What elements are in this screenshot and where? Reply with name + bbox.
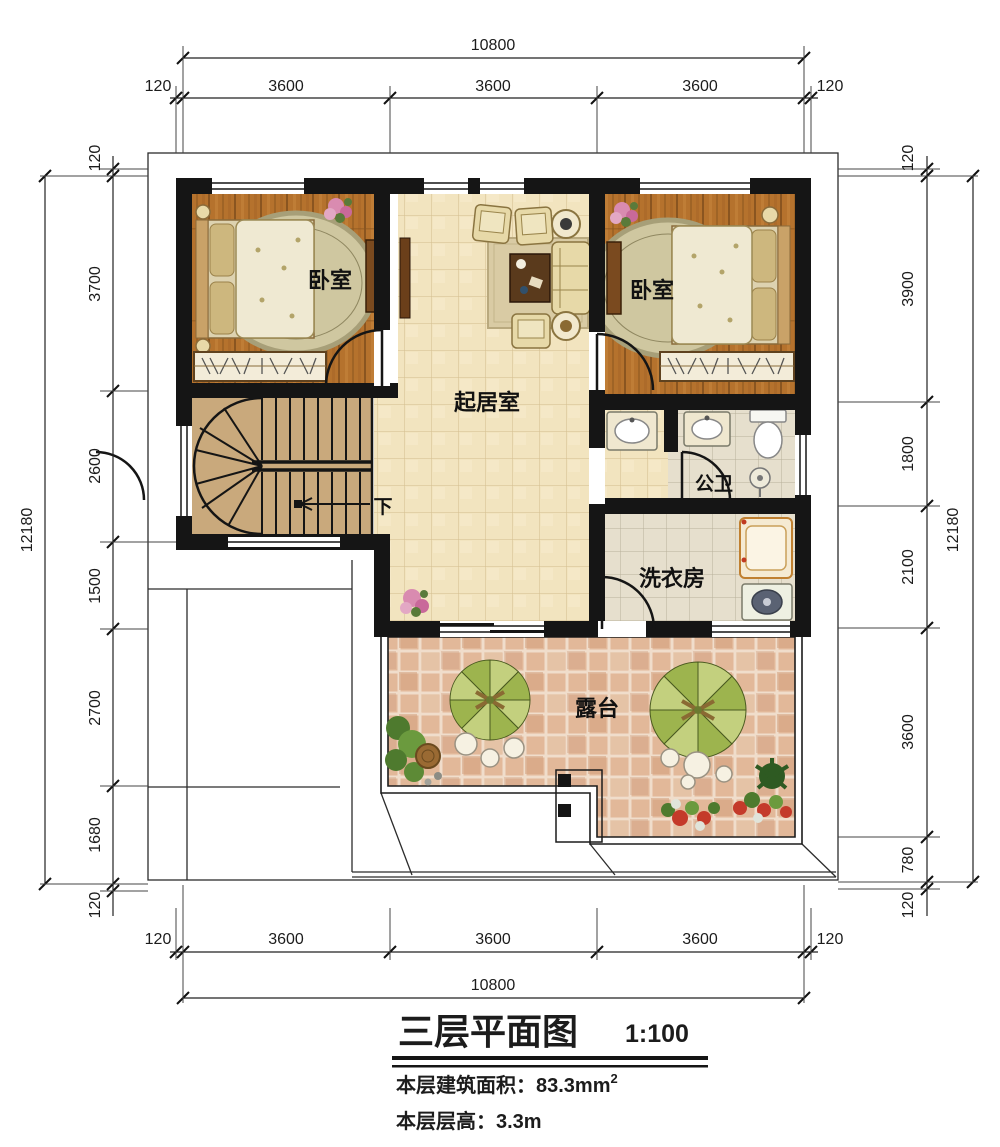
dims-left xyxy=(39,156,176,916)
lamp xyxy=(762,207,778,223)
room-label-living-room: 起居室 xyxy=(453,390,520,415)
dim-right-seg: 2100 xyxy=(900,549,917,585)
floor-area-line: 本层建筑面积：83.3mm2 xyxy=(396,1071,618,1097)
floor-plan-page: 下 xyxy=(0,0,1000,1147)
dim-right-seg: 3600 xyxy=(900,714,917,750)
window xyxy=(795,435,811,495)
sliding-door[interactable] xyxy=(440,621,544,637)
tv-cabinet xyxy=(400,238,410,318)
window xyxy=(212,178,304,194)
lamp xyxy=(196,205,210,219)
bed xyxy=(672,226,790,344)
wall-bedroomR-bottom xyxy=(589,394,811,410)
dim-right-seg: 120 xyxy=(900,892,917,919)
armchair xyxy=(515,207,553,245)
wardrobe xyxy=(660,352,794,381)
dim-top-seg: 120 xyxy=(145,78,172,95)
title-block: 三层平面图 1:100 本层建筑面积：83.3mm2 本层层高：3.3m xyxy=(392,1011,708,1133)
dim-left-overall: 12180 xyxy=(19,508,36,553)
dims-right-labels: 120 3900 1800 2100 3600 780 120 12180 xyxy=(900,145,962,919)
dim-top-seg: 3600 xyxy=(682,78,718,95)
wall-bedroomL-bottom xyxy=(176,383,398,398)
dims-bottom-labels: 120 3600 3600 3600 120 10800 xyxy=(145,931,844,994)
drawing-scale: 1:100 xyxy=(625,1020,689,1048)
coffee-table xyxy=(510,254,550,302)
window xyxy=(424,178,468,194)
wall-bath-alcove xyxy=(664,410,678,452)
dim-left-seg: 1680 xyxy=(87,817,104,853)
dim-right-seg: 1800 xyxy=(900,436,917,472)
dim-bottom-seg: 3600 xyxy=(475,931,511,948)
chair xyxy=(661,749,679,767)
dim-top-overall: 10800 xyxy=(471,37,516,54)
washing-machine xyxy=(740,518,792,578)
sink xyxy=(607,412,657,450)
armchair xyxy=(512,314,550,348)
dim-bottom-seg: 3600 xyxy=(682,931,718,948)
title-rule-thick xyxy=(392,1056,708,1060)
room-label-bedroom-right: 卧室 xyxy=(630,278,674,303)
window xyxy=(228,537,340,547)
dim-right-seg: 780 xyxy=(900,847,917,874)
chair xyxy=(681,775,695,789)
wall-living-bedroomR-upper xyxy=(589,194,605,332)
dims-left-labels: 120 3700 2600 1500 2700 1680 120 12180 xyxy=(19,145,104,919)
dim-top-seg: 120 xyxy=(817,78,844,95)
dim-left-seg: 120 xyxy=(87,145,104,172)
dim-top-seg: 3600 xyxy=(475,78,511,95)
window xyxy=(480,178,524,194)
dim-left-seg: 3700 xyxy=(87,266,104,302)
dim-right-seg: 120 xyxy=(900,145,917,172)
lamp xyxy=(196,339,210,353)
room-label-laundry: 洗衣房 xyxy=(639,566,705,591)
floor-plan-canvas: 下 xyxy=(0,0,1000,1147)
dim-left-seg: 2600 xyxy=(87,448,104,484)
window xyxy=(712,621,790,637)
drawing-title: 三层平面图 xyxy=(398,1011,578,1052)
dim-right-seg: 3900 xyxy=(900,271,917,307)
laundry-sink xyxy=(742,584,792,620)
armchair xyxy=(472,204,512,244)
dim-left-seg: 120 xyxy=(87,892,104,919)
window xyxy=(176,426,192,516)
chair xyxy=(716,766,732,782)
dim-right-overall: 12180 xyxy=(945,508,962,553)
chair xyxy=(481,749,499,767)
dim-bottom-seg: 3600 xyxy=(268,931,304,948)
sofa xyxy=(552,242,590,314)
title-rule-thin xyxy=(392,1065,708,1068)
chair xyxy=(504,738,524,758)
wall-bedroomL-living-upper xyxy=(374,194,390,330)
dim-left-seg: 2700 xyxy=(87,690,104,726)
window xyxy=(640,178,750,194)
dims-top-labels: 10800 120 3600 3600 3600 120 xyxy=(145,37,844,95)
laundry-fixtures xyxy=(740,518,792,620)
dim-bottom-seg: 120 xyxy=(145,931,172,948)
floor-height-line: 本层层高：3.3m xyxy=(396,1109,542,1133)
room-label-terrace: 露台 xyxy=(575,696,619,721)
room-label-bathroom: 公卫 xyxy=(695,473,733,495)
desk xyxy=(607,242,621,314)
dim-top-seg: 3600 xyxy=(268,78,304,95)
wall-bath-laundry xyxy=(605,498,811,514)
bed xyxy=(196,220,314,338)
chair xyxy=(684,752,710,778)
chair xyxy=(455,733,477,755)
stair-down-label: 下 xyxy=(373,497,392,518)
dim-left-seg: 1500 xyxy=(87,568,104,604)
umbrella-icon xyxy=(450,660,530,767)
wood-table xyxy=(416,744,440,768)
dim-bottom-seg: 120 xyxy=(817,931,844,948)
sink xyxy=(684,412,730,446)
room-label-bedroom-left: 卧室 xyxy=(308,268,352,293)
dim-bottom-overall: 10800 xyxy=(471,977,516,994)
dims-top xyxy=(170,46,818,153)
wardrobe xyxy=(194,352,326,381)
